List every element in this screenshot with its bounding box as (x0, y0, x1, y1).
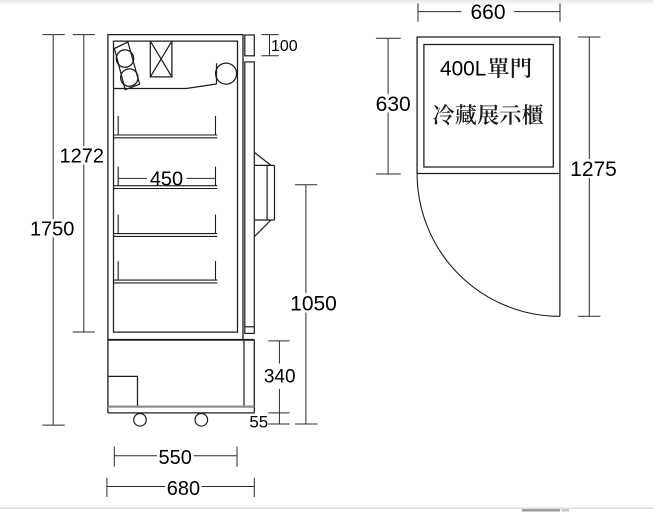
svg-text:400L: 400L (440, 57, 486, 80)
svg-text:100: 100 (271, 38, 298, 55)
svg-text:450: 450 (150, 169, 183, 191)
svg-text:1272: 1272 (60, 146, 105, 168)
svg-text:630: 630 (376, 93, 411, 116)
svg-text:550: 550 (159, 447, 192, 469)
svg-text:1050: 1050 (290, 293, 337, 316)
svg-text:1750: 1750 (30, 219, 75, 241)
svg-text:660: 660 (470, 1, 505, 24)
svg-text:680: 680 (167, 478, 200, 500)
svg-text:55: 55 (249, 413, 268, 432)
svg-text:1275: 1275 (570, 158, 617, 181)
svg-text:340: 340 (264, 366, 296, 387)
